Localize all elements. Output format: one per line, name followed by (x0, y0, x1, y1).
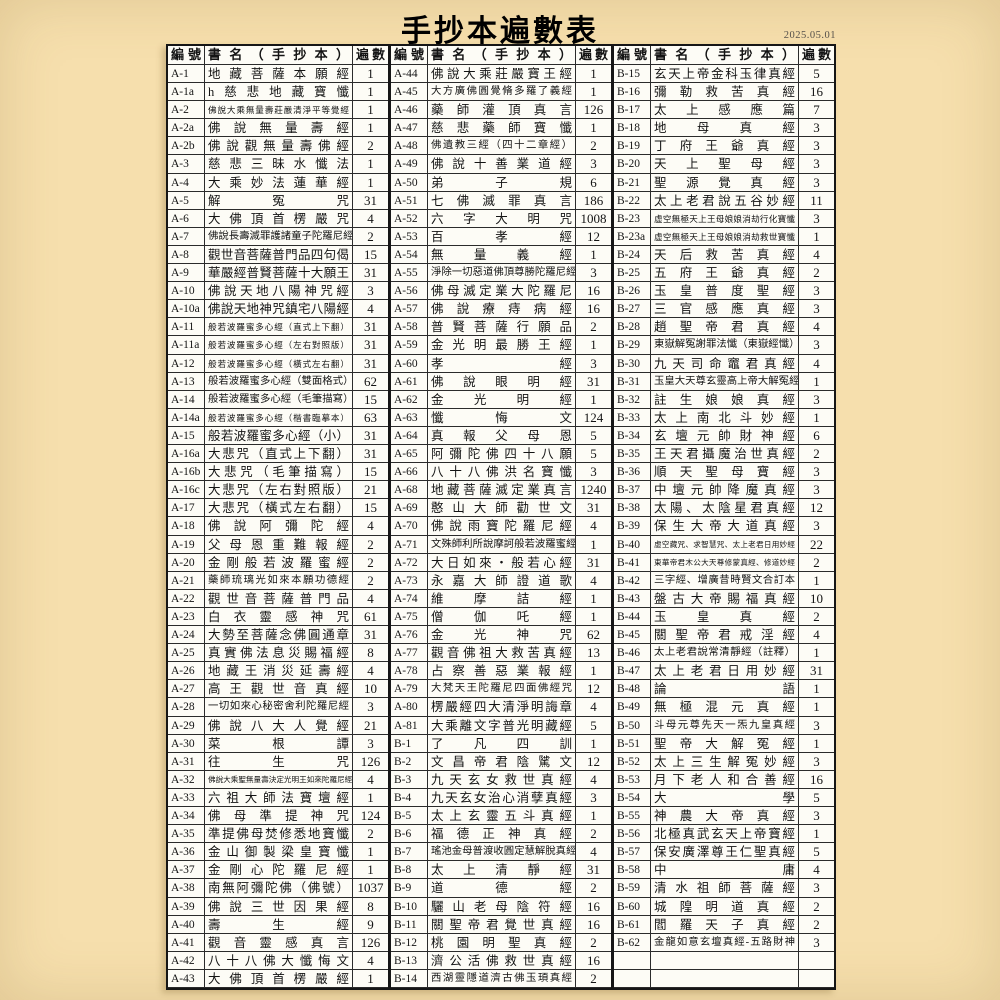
row-count: 3 (353, 698, 388, 716)
row-count: 1 (799, 409, 834, 427)
row-count: 12 (799, 499, 834, 517)
row-id: A-73 (391, 572, 428, 590)
row-id: A-81 (391, 717, 428, 735)
row-id: B-35 (614, 445, 651, 463)
row-id: A-78 (391, 662, 428, 680)
row-book-name: 般若波羅蜜多心經（橫式左右翻） (205, 355, 353, 373)
row-count: 31 (353, 318, 388, 336)
row-count: 2 (799, 898, 834, 916)
table-group-1: 編號 書名（手抄本） 遍數 A-1地藏菩薩本願經1A-1ah慈悲地藏寶懺1A-2… (166, 44, 390, 990)
row-count: 4 (353, 517, 388, 535)
row-id: B-26 (614, 282, 651, 300)
row-book-name: 註生娘娘真經 (651, 391, 799, 409)
row-count: 3 (799, 119, 834, 137)
row-book-name: 虛空無極天上王母娘娘消劫救世寶懺 (651, 228, 799, 246)
row-id: A-7 (168, 228, 205, 246)
row-book-name: 虛空藏咒、求智慧咒、太上老君日用妙經 (651, 536, 799, 554)
row-id: A-62 (391, 391, 428, 409)
row-id: A-44 (391, 65, 428, 83)
row-book-name: 八十八佛洪名寶懺 (428, 463, 576, 481)
row-book-name: 般若波羅蜜多心經（雙面格式） (205, 373, 353, 391)
row-count: 10 (799, 590, 834, 608)
row-id: A-31 (168, 753, 205, 771)
row-book-name: 玉皇大天尊玄靈高上帝大解冤經 (651, 373, 799, 391)
row-book-name: 玄天上帝金科玉律真經 (651, 65, 799, 83)
row-book-name: 百孝經 (428, 228, 576, 246)
row-book-name: 太上老君說常清靜經（註釋） (651, 644, 799, 662)
row-count: 31 (353, 355, 388, 373)
row-count: 2 (799, 608, 834, 626)
row-id: A-77 (391, 644, 428, 662)
row-count: 12 (576, 680, 611, 698)
header-id: 編號 (168, 46, 205, 65)
row-book-name: 普賢菩薩行願品 (428, 318, 576, 336)
row-book-name: 太上三生解冤妙經 (651, 753, 799, 771)
row-id: A-30 (168, 735, 205, 753)
row-book-name: 地藏王消災延壽經 (205, 662, 353, 680)
row-id: A-19 (168, 536, 205, 554)
row-book-name: 濟公活佛救世真經 (428, 952, 576, 970)
row-count: 3 (799, 753, 834, 771)
row-count: 3 (799, 481, 834, 499)
row-id: A-80 (391, 698, 428, 716)
row-count: 1 (576, 119, 611, 137)
row-count: 2 (353, 228, 388, 246)
row-count: 3 (799, 517, 834, 535)
row-book-name (651, 952, 799, 970)
row-id: A-18 (168, 517, 205, 535)
row-book-name: 大悲咒（毛筆描寫） (205, 463, 353, 481)
row-book-name: 淨除一切惡道佛頂尊勝陀羅尼經 (428, 264, 576, 282)
row-book-name: 白衣靈感神咒 (205, 608, 353, 626)
row-book-name: 王天君攝魔治世真經 (651, 445, 799, 463)
row-book-name: 福德正神真經 (428, 825, 576, 843)
row-book-name: 大乘妙法蓮華經 (205, 174, 353, 192)
row-book-name: 金光神咒 (428, 626, 576, 644)
row-book-name: 藥師琉璃光如來本願功德經 (205, 572, 353, 590)
row-count: 2 (799, 916, 834, 934)
row-id: B-47 (614, 662, 651, 680)
row-book-name: 佛說大乘無量壽莊嚴清淨平等覺經 (205, 101, 353, 119)
copy-count-table: 編號 書名（手抄本） 遍數 A-1地藏菩薩本願經1A-1ah慈悲地藏寶懺1A-2… (166, 44, 836, 990)
row-count: 15 (353, 391, 388, 409)
row-book-name: 天后救苦真經 (651, 246, 799, 264)
row-count: 11 (799, 192, 834, 210)
row-count: 3 (799, 336, 834, 354)
date-label: 2025.05.01 (666, 30, 836, 41)
row-id: A-23 (168, 608, 205, 626)
row-book-name: 父母恩重難報經 (205, 536, 353, 554)
row-count: 3 (576, 355, 611, 373)
row-book-name: 順天聖母寶經 (651, 463, 799, 481)
row-count: 4 (799, 861, 834, 879)
row-count: 4 (576, 572, 611, 590)
row-count: 2 (799, 554, 834, 572)
row-count: 2 (799, 264, 834, 282)
row-book-name: 僧伽吒經 (428, 608, 576, 626)
row-count: 31 (576, 499, 611, 517)
row-id: B-30 (614, 355, 651, 373)
row-book-name: 永嘉大師證道歌 (428, 572, 576, 590)
row-id: B-2 (391, 753, 428, 771)
row-count: 31 (576, 861, 611, 879)
row-book-name: 太上老君說五谷妙經 (651, 192, 799, 210)
row-count: 5 (799, 789, 834, 807)
row-book-name: 瑤池金母普渡收圓定慧解脫真經 (428, 843, 576, 861)
row-book-name: 金光明經 (428, 391, 576, 409)
row-id: A-38 (168, 879, 205, 897)
row-count: 4 (799, 626, 834, 644)
row-book-name: 太上南北斗妙經 (651, 409, 799, 427)
row-id: A-25 (168, 644, 205, 662)
row-id: B-36 (614, 463, 651, 481)
row-count: 2 (353, 572, 388, 590)
row-id: A-1 (168, 65, 205, 83)
row-count: 5 (576, 717, 611, 735)
row-book-name: 楞嚴經四大清淨明誨章 (428, 698, 576, 716)
row-book-name: 一切如來心秘密舍利陀羅尼經 (205, 698, 353, 716)
row-count: 16 (576, 300, 611, 318)
row-count: 126 (576, 101, 611, 119)
row-count: 2 (576, 825, 611, 843)
row-id: B-32 (614, 391, 651, 409)
row-book-name: 大學 (651, 789, 799, 807)
row-book-name: 佛遺教三經（四十二章經） (428, 137, 576, 155)
row-book-name: 準提佛母焚修悉地寶懺 (205, 825, 353, 843)
row-book-name: 般若波羅蜜多心經（楷書臨摹本） (205, 409, 353, 427)
row-count: 3 (353, 282, 388, 300)
row-count: 4 (799, 246, 834, 264)
row-count: 124 (576, 409, 611, 427)
row-id: A-69 (391, 499, 428, 517)
row-book-name: 西湖靈隱道濟古佛玉頊真經 (428, 970, 576, 988)
row-id: A-72 (391, 554, 428, 572)
row-book-name: 中壇元帥降魔真經 (651, 481, 799, 499)
row-id: A-3 (168, 155, 205, 173)
row-book-name: 佛說眼明經 (428, 373, 576, 391)
row-count: 1 (576, 735, 611, 753)
row-book-name: 閻羅天子真經 (651, 916, 799, 934)
row-id: A-71 (391, 536, 428, 554)
row-book-name: 觀世音菩薩普門品四句偈 (205, 246, 353, 264)
row-count: 3 (799, 717, 834, 735)
row-book-name: 大日如來・般若心經 (428, 554, 576, 572)
row-id: B-55 (614, 807, 651, 825)
row-book-name: 慈悲三昧水懺法 (205, 155, 353, 173)
row-id (614, 970, 651, 988)
row-id: A-66 (391, 463, 428, 481)
row-book-name: 藥師灌頂真言 (428, 101, 576, 119)
row-id: A-16c (168, 481, 205, 499)
row-count: 2 (353, 536, 388, 554)
row-id: B-15 (614, 65, 651, 83)
row-id: A-55 (391, 264, 428, 282)
row-book-name: 般若波羅蜜多心經（直式上下翻） (205, 318, 353, 336)
row-book-name: 佛母準提神咒 (205, 807, 353, 825)
row-count: 4 (353, 952, 388, 970)
row-book-name: 地母真經 (651, 119, 799, 137)
row-id: B-18 (614, 119, 651, 137)
row-count: 1 (576, 83, 611, 101)
row-book-name: 七佛滅罪真言 (428, 192, 576, 210)
table-group-2: 編號 書名（手抄本） 遍數 A-44佛說大乘莊嚴寶王經1A-45大方廣佛圓覺脩多… (390, 44, 613, 990)
header-book-name: 書名（手抄本） (651, 46, 799, 65)
row-id: A-1a (168, 83, 205, 101)
header-book-name: 書名（手抄本） (205, 46, 353, 65)
header-count: 遍數 (576, 46, 611, 65)
row-count: 3 (576, 463, 611, 481)
row-count: 2 (576, 318, 611, 336)
row-id: A-41 (168, 934, 205, 952)
row-id: A-26 (168, 662, 205, 680)
row-id: A-52 (391, 210, 428, 228)
row-id (614, 952, 651, 970)
row-id: A-57 (391, 300, 428, 318)
row-count: 6 (799, 427, 834, 445)
row-id: A-35 (168, 825, 205, 843)
row-book-name: 玉皇真經 (651, 608, 799, 626)
row-count: 3 (799, 391, 834, 409)
row-book-name (651, 970, 799, 988)
row-id: A-29 (168, 717, 205, 735)
row-book-name: 菜根譚 (205, 735, 353, 753)
row-count: 21 (353, 717, 388, 735)
row-book-name: 地藏菩薩滅定業真言 (428, 481, 576, 499)
document-page: 手抄本遍數表 2025.05.01 編號 書名（手抄本） 遍數 A-1地藏菩薩本… (0, 0, 1000, 1000)
row-id: B-43 (614, 590, 651, 608)
row-id: A-36 (168, 843, 205, 861)
row-id: A-4 (168, 174, 205, 192)
row-id: A-70 (391, 517, 428, 535)
row-id: B-42 (614, 572, 651, 590)
row-id: B-58 (614, 861, 651, 879)
row-id: B-14 (391, 970, 428, 988)
row-book-name: 關聖帝君覺世真經 (428, 916, 576, 934)
row-count: 3 (799, 300, 834, 318)
row-book-name: 往生咒 (205, 753, 353, 771)
row-count: 5 (576, 427, 611, 445)
row-book-name: 桃園明聖真經 (428, 934, 576, 952)
row-book-name: 八十八佛大懺悔文 (205, 952, 353, 970)
row-id: B-6 (391, 825, 428, 843)
row-count: 126 (353, 753, 388, 771)
row-book-name: 玉皇普度聖經 (651, 282, 799, 300)
row-id: A-28 (168, 698, 205, 716)
row-book-name: 佛說無量壽經 (205, 119, 353, 137)
row-book-name: 金光明最勝王經 (428, 336, 576, 354)
row-book-name: 佛說天地八陽神咒經 (205, 282, 353, 300)
row-id: B-4 (391, 789, 428, 807)
row-id: A-58 (391, 318, 428, 336)
row-count: 1 (353, 861, 388, 879)
row-book-name: 佛說天地神咒鎮宅八陽經 (205, 300, 353, 318)
row-count: 31 (576, 554, 611, 572)
row-count: 8 (353, 644, 388, 662)
header-count: 遍數 (799, 46, 834, 65)
row-book-name: 弟子規 (428, 174, 576, 192)
row-id: A-17 (168, 499, 205, 517)
row-id: B-13 (391, 952, 428, 970)
row-book-name: 大佛頂首楞嚴經 (205, 970, 353, 988)
row-book-name: 無極混元真經 (651, 698, 799, 716)
row-id: B-57 (614, 843, 651, 861)
row-id: B-44 (614, 608, 651, 626)
row-id: B-48 (614, 680, 651, 698)
row-id: A-13 (168, 373, 205, 391)
row-count: 31 (576, 373, 611, 391)
row-count: 1 (353, 101, 388, 119)
row-book-name: 六祖大師法寶壇經 (205, 789, 353, 807)
row-count: 1 (576, 536, 611, 554)
row-book-name: 大悲咒（直式上下翻） (205, 445, 353, 463)
row-id: A-48 (391, 137, 428, 155)
row-book-name: 保安廣澤尊王仁聖真經 (651, 843, 799, 861)
row-book-name: 懺悔文 (428, 409, 576, 427)
row-book-name: 神農大帝真經 (651, 807, 799, 825)
row-book-name: 東華帝君木公大天尊修蒙真經、修道妙經 (651, 554, 799, 572)
row-id: A-43 (168, 970, 205, 988)
row-count: 10 (353, 680, 388, 698)
row-count: 1 (576, 608, 611, 626)
row-id: A-60 (391, 355, 428, 373)
row-count: 1 (799, 572, 834, 590)
row-book-name: 大勢至菩薩念佛圓通章 (205, 626, 353, 644)
row-book-name: 九天玄女治心消孽真經 (428, 789, 576, 807)
row-count: 4 (353, 210, 388, 228)
row-id: A-22 (168, 590, 205, 608)
row-count: 1 (576, 336, 611, 354)
row-book-name: 彌勒救苦真經 (651, 83, 799, 101)
row-id: B-27 (614, 300, 651, 318)
table-group-3: 編號 書名（手抄本） 遍數 B-15玄天上帝金科玉律真經5B-16彌勒救苦真經1… (613, 44, 836, 990)
row-count: 3 (576, 155, 611, 173)
row-id: A-47 (391, 119, 428, 137)
row-id: A-54 (391, 246, 428, 264)
row-count: 1 (353, 155, 388, 173)
row-book-name: 真報父母恩 (428, 427, 576, 445)
row-book-name: 佛說雨寶陀羅尼經 (428, 517, 576, 535)
row-book-name: 觀音靈感真言 (205, 934, 353, 952)
row-count: 1 (576, 662, 611, 680)
row-book-name: 慈悲藥師寶懺 (428, 119, 576, 137)
row-id: B-40 (614, 536, 651, 554)
row-id: B-8 (391, 861, 428, 879)
row-id: B-51 (614, 735, 651, 753)
row-id: A-20 (168, 554, 205, 572)
row-id: B-23a (614, 228, 651, 246)
row-book-name: 九天司命竈君真經 (651, 355, 799, 373)
row-count: 1 (799, 373, 834, 391)
row-count: 16 (576, 916, 611, 934)
row-book-name: 維摩詰經 (428, 590, 576, 608)
row-count: 1 (353, 119, 388, 137)
row-book-name: 佛母滅定業大陀羅尼 (428, 282, 576, 300)
row-book-name: 清水祖師菩薩經 (651, 879, 799, 897)
row-book-name: 金剛心陀羅尼經 (205, 861, 353, 879)
row-count: 1 (576, 246, 611, 264)
row-count: 16 (576, 952, 611, 970)
row-count: 6 (576, 174, 611, 192)
row-count: 12 (576, 753, 611, 771)
row-count: 124 (353, 807, 388, 825)
row-id: A-76 (391, 626, 428, 644)
row-book-name: 城隍明道真經 (651, 898, 799, 916)
row-id: B-37 (614, 481, 651, 499)
row-id: A-9 (168, 264, 205, 282)
row-count: 15 (353, 246, 388, 264)
row-id: B-10 (391, 898, 428, 916)
row-id: A-11 (168, 318, 205, 336)
row-book-name: 佛說大乘莊嚴寶王經 (428, 65, 576, 83)
row-id: B-52 (614, 753, 651, 771)
row-count: 3 (799, 282, 834, 300)
row-count: 4 (353, 300, 388, 318)
row-count: 16 (576, 282, 611, 300)
row-count: 31 (353, 192, 388, 210)
row-count: 3 (353, 735, 388, 753)
row-id: B-34 (614, 427, 651, 445)
row-book-name: 太上玄靈五斗真經 (428, 807, 576, 825)
row-book-name: 觀世音菩薩普門品 (205, 590, 353, 608)
row-book-name: 金山御製梁皇寶懺 (205, 843, 353, 861)
row-count: 1008 (576, 210, 611, 228)
row-count: 62 (576, 626, 611, 644)
row-book-name: 斗母元尊先天一炁九皇真經 (651, 717, 799, 735)
row-book-name: 佛說八大人覺經 (205, 717, 353, 735)
row-count: 31 (353, 264, 388, 282)
row-count: 16 (799, 83, 834, 101)
row-count: 16 (799, 771, 834, 789)
row-id: A-79 (391, 680, 428, 698)
row-id: A-39 (168, 898, 205, 916)
row-count: 1 (353, 970, 388, 988)
row-id: A-42 (168, 952, 205, 970)
row-book-name: 觀音佛祖大救苦真經 (428, 644, 576, 662)
row-book-name: 金龍如意玄壇真經-五路財神 (651, 934, 799, 952)
row-book-name: 佛說阿彌陀經 (205, 517, 353, 535)
row-book-name: 驪山老母陰符經 (428, 898, 576, 916)
row-book-name: 佛說觀無量壽佛經 (205, 137, 353, 155)
row-id: A-14 (168, 391, 205, 409)
row-id: A-24 (168, 626, 205, 644)
row-book-name: 真實佛法息災賜福經 (205, 644, 353, 662)
row-id: A-16a (168, 445, 205, 463)
row-count: 2 (799, 445, 834, 463)
row-id: A-49 (391, 155, 428, 173)
row-book-name: 趙聖帝君真經 (651, 318, 799, 336)
row-count: 15 (353, 463, 388, 481)
row-count: 1 (799, 644, 834, 662)
row-id: B-39 (614, 517, 651, 535)
row-id: A-61 (391, 373, 428, 391)
row-id: A-16b (168, 463, 205, 481)
row-id: B-53 (614, 771, 651, 789)
row-count: 3 (799, 807, 834, 825)
row-id: A-40 (168, 916, 205, 934)
row-book-name: 解冤咒 (205, 192, 353, 210)
row-id: A-46 (391, 101, 428, 119)
row-book-name: 華嚴經普賢菩薩十大願王 (205, 264, 353, 282)
row-count: 1 (799, 825, 834, 843)
row-count: 31 (353, 626, 388, 644)
row-id: B-50 (614, 717, 651, 735)
row-book-name: 南無阿彌陀佛（佛號） (205, 879, 353, 897)
row-count: 1 (799, 680, 834, 698)
row-count: 31 (353, 336, 388, 354)
row-book-name: 盤古大帝賜福真經 (651, 590, 799, 608)
header-id: 編號 (614, 46, 651, 65)
row-count: 63 (353, 409, 388, 427)
